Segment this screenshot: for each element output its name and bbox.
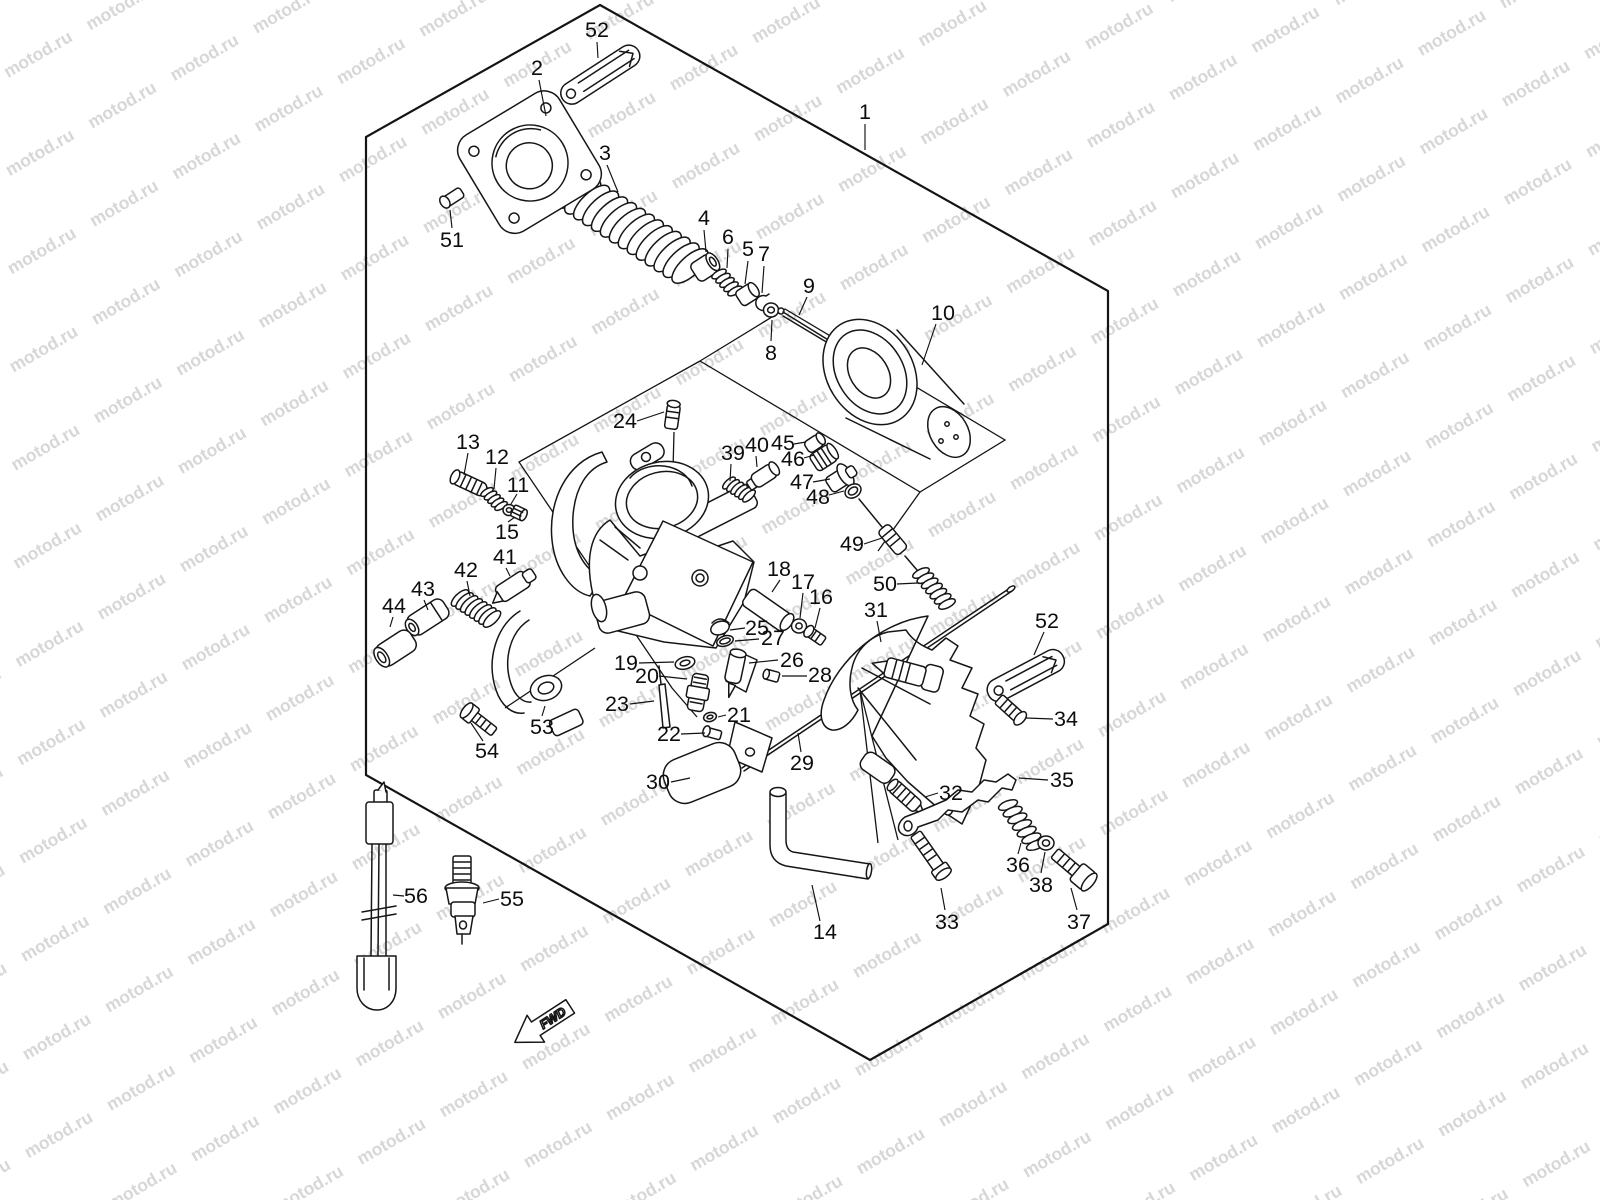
parts-diagram-page: motod.rumotod.rumotod.rumotod.rumotod.ru…	[0, 0, 1600, 1200]
part-label-42: 42	[454, 558, 478, 582]
part-label-36: 36	[1006, 853, 1030, 877]
part-label-18: 18	[767, 557, 791, 581]
part-38-washer	[1038, 836, 1054, 850]
part-label-9: 9	[803, 274, 815, 298]
part-label-40: 40	[745, 433, 769, 457]
part-label-31: 31	[864, 598, 888, 622]
part-label-1: 1	[859, 100, 871, 124]
part-label-55: 55	[500, 887, 524, 911]
part-label-43: 43	[411, 577, 435, 601]
part-label-56: 56	[404, 884, 428, 908]
part-label-16: 16	[809, 585, 833, 609]
part-label-2: 2	[531, 56, 543, 80]
part-label-4: 4	[698, 206, 710, 230]
part-label-11: 11	[507, 473, 529, 497]
part-8-washer	[764, 303, 779, 317]
part-label-23: 23	[605, 692, 629, 716]
part-label-27: 27	[761, 626, 785, 650]
part-label-48: 48	[806, 485, 830, 509]
part-label-7: 7	[758, 242, 770, 266]
part-label-38: 38	[1029, 873, 1053, 897]
part-label-52: 52	[1035, 609, 1059, 633]
part-label-28: 28	[808, 663, 832, 687]
part-label-52: 52	[585, 18, 609, 42]
part-label-14: 14	[813, 920, 837, 944]
part-label-46: 46	[781, 447, 805, 471]
part-label-6: 6	[722, 225, 734, 249]
part-label-50: 50	[873, 572, 897, 596]
part-label-35: 35	[1050, 768, 1074, 792]
part-label-44: 44	[382, 594, 406, 618]
part-label-26: 26	[780, 648, 804, 672]
part-label-22: 22	[657, 722, 681, 746]
part-label-32: 32	[939, 781, 963, 805]
exploded-diagram-canvas: motod.rumotod.rumotod.rumotod.rumotod.ru…	[0, 0, 1600, 1200]
part-label-41: 41	[493, 545, 517, 569]
part-label-29: 29	[790, 751, 814, 775]
part-label-51: 51	[440, 228, 464, 252]
part-label-21: 21	[727, 703, 751, 727]
part-label-3: 3	[599, 141, 611, 165]
part-label-30: 30	[646, 770, 670, 794]
part-label-15: 15	[495, 520, 519, 544]
part-label-33: 33	[935, 910, 959, 934]
part-label-37: 37	[1067, 910, 1091, 934]
part-label-8: 8	[765, 341, 777, 365]
part-label-10: 10	[931, 301, 955, 325]
part-label-12: 12	[485, 445, 509, 469]
part-label-13: 13	[456, 430, 480, 454]
part-label-39: 39	[721, 441, 745, 465]
part-label-53: 53	[530, 715, 554, 739]
part-label-5: 5	[742, 237, 754, 261]
part-label-24: 24	[613, 409, 637, 433]
part-label-54: 54	[475, 739, 499, 763]
part-label-49: 49	[840, 532, 864, 556]
part-label-20: 20	[635, 664, 659, 688]
part-label-34: 34	[1054, 707, 1078, 731]
